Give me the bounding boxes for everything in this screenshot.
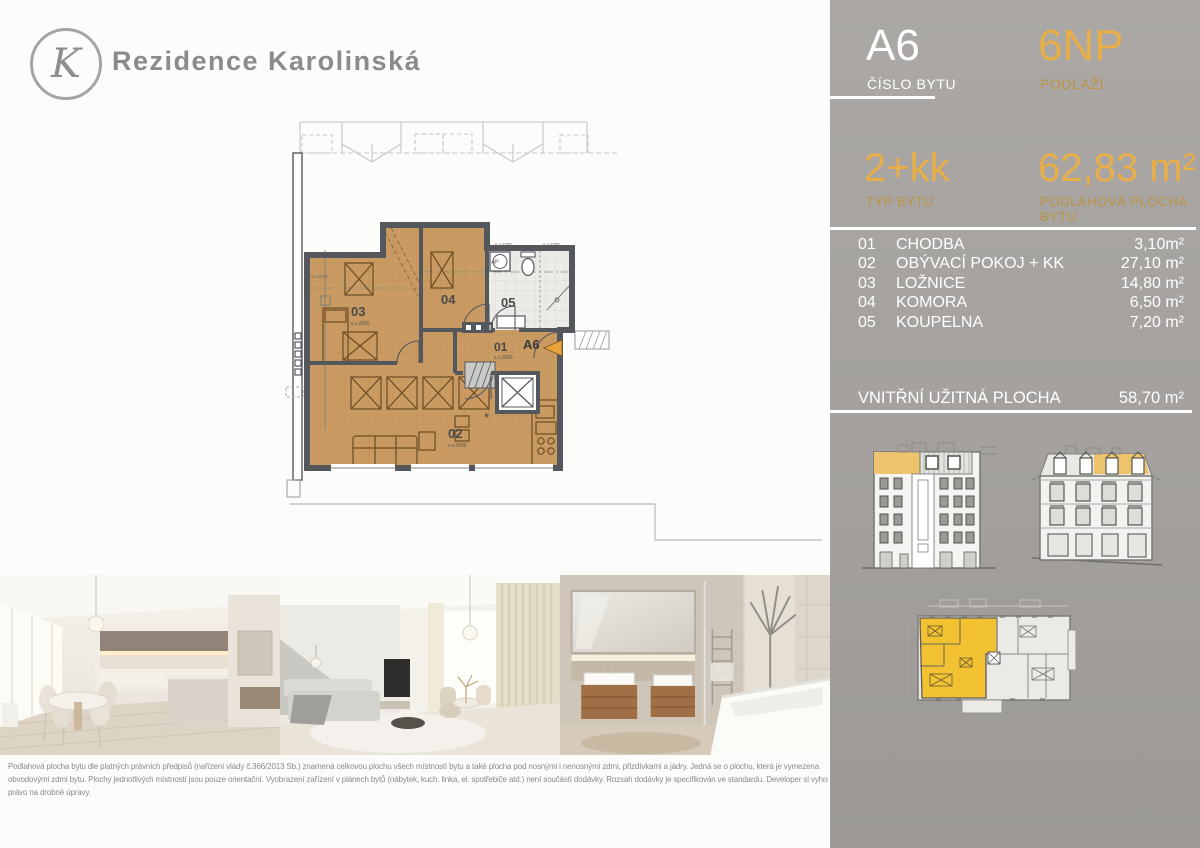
room-area: 3,10m² [1134,236,1192,254]
room-num: 02 [830,255,896,273]
room-area: 7,20 m² [1130,314,1192,332]
label-room-03: 03 [351,304,365,319]
type-value: 2+kk [864,148,950,188]
room-name: KOUPELNA [896,314,1130,332]
table-row: 01 CHODBA 3,10m² [830,236,1192,255]
room-name: KOMORA [896,294,1130,312]
label-height-03: s.v.2600 [351,321,370,327]
photo-kitchen-dining [0,575,280,755]
divider-bottom [830,410,1192,413]
unit-number: A6 [866,24,920,68]
label-unit: A6 [523,337,540,352]
label-height-05b: s.v.2300 [543,242,560,247]
svg-text:*: * [484,410,489,425]
total-area-value: 58,70 m² [1119,389,1192,408]
terrace-outline [290,504,822,540]
room-num: 01 [830,236,896,254]
area-value: 62,83 m² [1038,148,1196,188]
label-height-01: s.v.2600 [494,355,513,361]
room-num: 03 [830,275,896,293]
disclaimer-line: obvodovými zdmi bytu. Plochy jednotlivýc… [8,773,828,786]
page-title: Rezidence Karolinská [112,46,421,77]
room-name: LOŽNICE [896,275,1121,293]
floor-value: 6NP [1038,24,1124,68]
table-row: 02 OBÝVACÍ POKOJ + KK 27,10 m² [830,255,1192,274]
area-label: PODLAHOVÁ PLOCHA BYTU [1040,194,1200,224]
type-label: TYP BYTU [866,194,934,209]
room-name: OBÝVACÍ POKOJ + KK [896,255,1121,273]
info-panel: A6 ČÍSLO BYTU 6NP PODLAŽÍ 2+kk TYP BYTU … [830,0,1200,848]
photo-living-room [280,575,560,755]
logo-letter: K [51,41,81,87]
total-area-label: VNITŘNÍ UŽITNÁ PLOCHA [830,389,1119,408]
label-height-02: s.v.2600 [448,443,467,449]
brochure-page: K Rezidence Karolinská [0,0,1200,848]
divider-top [830,227,1196,230]
room-list: 01 CHODBA 3,10m² 02 OBÝVACÍ POKOJ + KK 2… [830,236,1192,333]
total-area-row: VNITŘNÍ UŽITNÁ PLOCHA 58,70 m² [830,389,1192,408]
table-row: 04 KOMORA 6,50 m² [830,294,1192,313]
unit-number-label: ČÍSLO BYTU [867,76,956,92]
label-room-05: 05 [501,295,515,310]
table-row: 03 LOŽNICE 14,80 m² [830,275,1192,294]
room-area: 6,50 m² [1130,294,1192,312]
table-row: 05 KOUPELNA 7,20 m² [830,314,1192,333]
photo-strip [0,575,830,755]
floor-label: PODLAŽÍ [1040,76,1104,92]
label-height-03b: s.v.2300 [311,274,328,279]
legal-disclaimer: Podlahová plocha bytu dle platných právn… [8,760,828,799]
label-room-01: 01 [494,340,508,354]
label-height-05a: s.v.2300 [495,242,512,247]
disclaimer-line: Podlahová plocha bytu dle platných právn… [8,760,828,773]
key-plan [900,596,1095,724]
roof-outline [300,122,620,162]
disclaimer-line: právo na drobné úpravy. [8,786,828,799]
room-num: 05 [830,314,896,332]
label-ap: AP [491,260,499,266]
room-num: 04 [830,294,896,312]
label-room-02: 02 [448,426,462,441]
room-name: CHODBA [896,236,1134,254]
unit-underline [830,96,935,99]
elevation-modern-building [860,436,1000,578]
floor-plan-drawing: * [285,100,830,560]
windows [331,464,553,472]
photo-bathroom [560,575,830,755]
label-room-04: 04 [441,292,456,307]
elevation-classic-building [1028,436,1168,578]
room-area: 27,10 m² [1121,255,1192,273]
room-area: 14,80 m² [1121,275,1192,293]
adjacent-structure-outline [286,153,303,497]
brand-logo: K [30,28,102,100]
